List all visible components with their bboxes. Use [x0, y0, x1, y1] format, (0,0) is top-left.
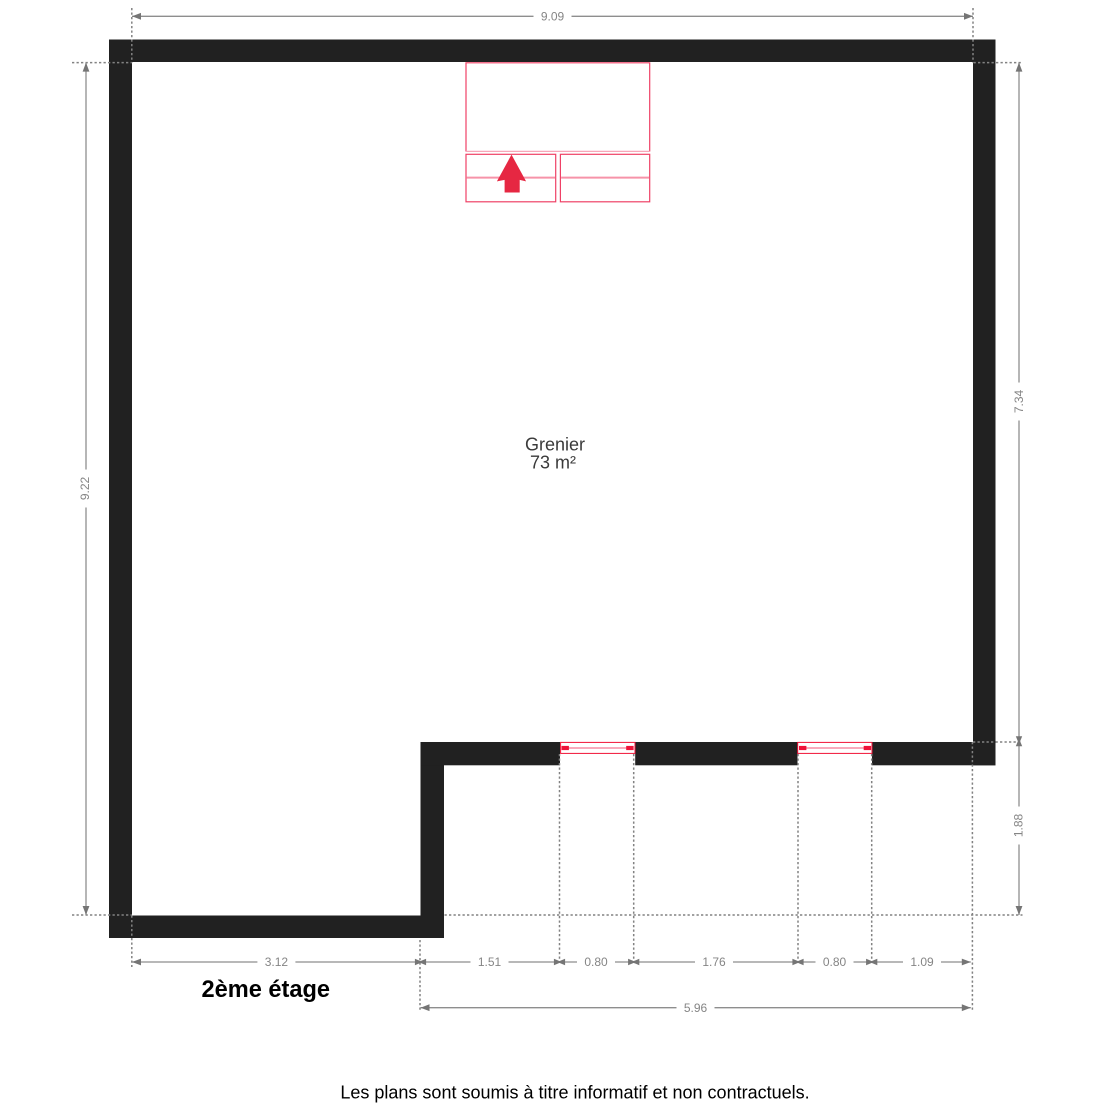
svg-text:0.80: 0.80 — [823, 955, 847, 969]
svg-text:9.09: 9.09 — [541, 9, 565, 23]
svg-text:1.51: 1.51 — [478, 955, 502, 969]
svg-text:3.12: 3.12 — [265, 955, 289, 969]
svg-text:1.76: 1.76 — [702, 955, 726, 969]
svg-text:7.34: 7.34 — [1012, 389, 1026, 413]
svg-text:2ème étage: 2ème étage — [202, 977, 331, 1003]
svg-text:1.88: 1.88 — [1011, 813, 1025, 837]
svg-text:Les plans sont soumis à titre: Les plans sont soumis à titre informatif… — [340, 1082, 809, 1102]
svg-text:9.22: 9.22 — [78, 476, 92, 500]
svg-text:1.09: 1.09 — [910, 955, 934, 969]
svg-text:5.96: 5.96 — [684, 1001, 708, 1015]
svg-text:0.80: 0.80 — [584, 955, 608, 969]
svg-text:73 m²: 73 m² — [530, 452, 576, 472]
